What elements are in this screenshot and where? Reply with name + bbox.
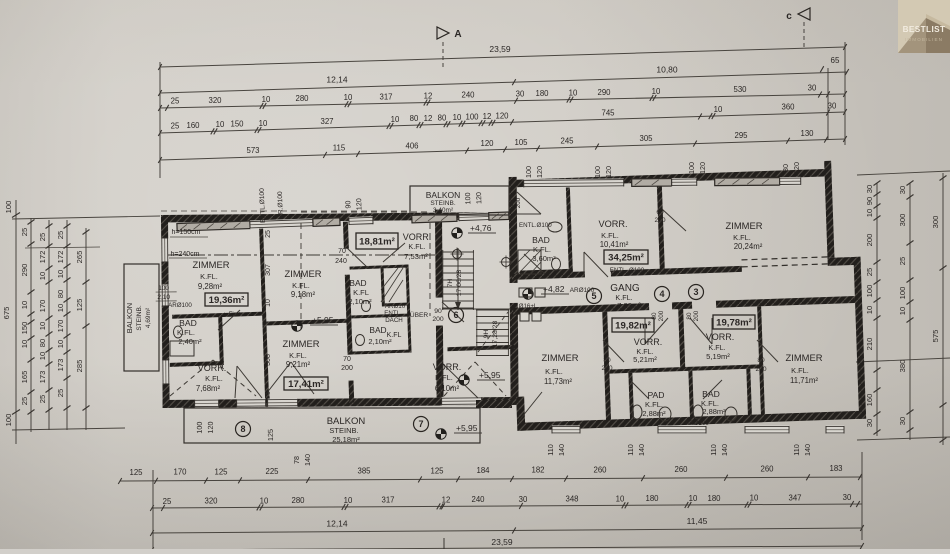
svg-text:BAD: BAD xyxy=(702,389,720,399)
svg-text:170: 170 xyxy=(173,468,187,477)
svg-text:125: 125 xyxy=(214,467,228,476)
svg-text:9,21m²: 9,21m² xyxy=(286,360,311,369)
svg-text:BALKON: BALKON xyxy=(125,303,134,333)
svg-text:200: 200 xyxy=(601,365,612,372)
svg-text:120: 120 xyxy=(495,112,509,121)
svg-text:12: 12 xyxy=(424,114,433,123)
svg-text:12: 12 xyxy=(424,92,433,101)
svg-text:406: 406 xyxy=(405,141,418,150)
svg-text:10,41m²: 10,41m² xyxy=(600,240,629,249)
svg-text:10: 10 xyxy=(898,307,907,315)
svg-text:K.FL.: K.FL. xyxy=(408,242,425,251)
svg-text:30: 30 xyxy=(519,495,528,504)
svg-text:23,59: 23,59 xyxy=(489,44,511,54)
svg-text:K.FL.: K.FL. xyxy=(177,328,195,337)
svg-text:h=240cm: h=240cm xyxy=(171,251,200,258)
svg-text:BESTLIST: BESTLIST xyxy=(903,25,946,34)
svg-text:19,36m²: 19,36m² xyxy=(209,295,245,306)
svg-text:BAD: BAD xyxy=(532,235,550,245)
svg-text:265: 265 xyxy=(75,251,84,264)
svg-text:125: 125 xyxy=(430,466,444,475)
svg-text:120: 120 xyxy=(604,166,613,178)
svg-text:80: 80 xyxy=(56,290,65,298)
svg-text:K.FL.: K.FL. xyxy=(435,373,453,382)
svg-text:100: 100 xyxy=(865,285,874,298)
svg-text:285: 285 xyxy=(75,360,84,373)
svg-text:10: 10 xyxy=(616,494,625,503)
svg-text:K.FL.: K.FL. xyxy=(791,366,809,375)
svg-text:BALKON: BALKON xyxy=(426,190,461,200)
svg-text:ZIMMER: ZIMMER xyxy=(283,338,320,349)
svg-text:172: 172 xyxy=(38,251,47,264)
svg-text:80: 80 xyxy=(38,339,47,347)
svg-text:23,59: 23,59 xyxy=(491,537,513,547)
svg-text:ZIMMER: ZIMMER xyxy=(726,220,763,231)
svg-text:105: 105 xyxy=(514,138,528,147)
svg-text:c: c xyxy=(786,11,792,22)
svg-text:ZIMMER: ZIMMER xyxy=(542,352,579,363)
svg-text:10: 10 xyxy=(56,340,65,348)
svg-text:25: 25 xyxy=(171,97,180,106)
svg-text:80: 80 xyxy=(410,114,419,123)
svg-text:210: 210 xyxy=(865,338,874,351)
svg-text:80: 80 xyxy=(651,312,658,320)
svg-text:240: 240 xyxy=(471,495,485,504)
svg-text:25: 25 xyxy=(171,122,180,131)
svg-text:ENTL.: ENTL. xyxy=(384,310,402,317)
svg-text:7,23m²: 7,23m² xyxy=(617,301,641,310)
svg-text:25: 25 xyxy=(265,391,272,399)
svg-text:9,18m²: 9,18m² xyxy=(291,290,316,299)
svg-text:165: 165 xyxy=(20,371,29,384)
svg-text:30: 30 xyxy=(808,84,817,93)
svg-text:260: 260 xyxy=(760,465,774,474)
svg-text:80: 80 xyxy=(438,113,447,122)
svg-text:34,25m²: 34,25m² xyxy=(608,252,644,263)
svg-text:7: 7 xyxy=(418,419,423,429)
svg-text:172: 172 xyxy=(56,251,65,264)
svg-text:18,81m²: 18,81m² xyxy=(359,236,395,247)
svg-text:K.FL.: K.FL. xyxy=(200,272,218,281)
svg-text:10: 10 xyxy=(20,301,29,309)
svg-text:110: 110 xyxy=(546,444,555,455)
svg-text:25: 25 xyxy=(38,233,47,241)
svg-text:30: 30 xyxy=(828,101,837,110)
svg-text:182: 182 xyxy=(531,466,544,475)
svg-text:30: 30 xyxy=(865,185,874,193)
svg-text:150: 150 xyxy=(230,120,244,129)
svg-text:10: 10 xyxy=(391,115,400,124)
svg-text:10: 10 xyxy=(652,87,661,96)
svg-text:10: 10 xyxy=(38,272,47,280)
svg-text:10: 10 xyxy=(56,304,65,312)
svg-text:120: 120 xyxy=(354,198,363,210)
svg-text:STEINB.: STEINB. xyxy=(430,200,455,207)
svg-text:ZIMMER: ZIMMER xyxy=(285,268,322,279)
svg-text:200: 200 xyxy=(341,365,353,372)
svg-text:140: 140 xyxy=(720,444,729,456)
svg-text:180: 180 xyxy=(707,494,721,503)
svg-text:2,10m²: 2,10m² xyxy=(368,337,392,346)
svg-text:290: 290 xyxy=(20,264,29,277)
svg-text:2,88m²: 2,88m² xyxy=(642,409,666,418)
svg-text:+4,76: +4,76 xyxy=(470,223,492,233)
svg-text:ZIMMER: ZIMMER xyxy=(786,352,823,363)
svg-text:120: 120 xyxy=(698,162,707,174)
svg-text:200: 200 xyxy=(658,310,665,321)
svg-text:4: 4 xyxy=(659,289,664,299)
svg-text:184: 184 xyxy=(476,466,490,475)
svg-text:10: 10 xyxy=(714,105,723,114)
svg-text:9H: 9H xyxy=(483,330,490,339)
svg-text:300: 300 xyxy=(931,216,940,229)
svg-text:25: 25 xyxy=(38,395,47,403)
svg-text:305: 305 xyxy=(639,134,653,143)
svg-text:10: 10 xyxy=(262,95,271,104)
svg-text:10: 10 xyxy=(260,496,269,505)
svg-text:70: 70 xyxy=(338,248,346,255)
svg-text:11,45: 11,45 xyxy=(687,516,708,526)
svg-text:17,41m²: 17,41m² xyxy=(288,379,324,390)
svg-text:A: A xyxy=(454,29,461,40)
svg-text:ARØ100: ARØ100 xyxy=(168,302,192,309)
svg-text:90: 90 xyxy=(865,197,874,205)
svg-text:h=150cm: h=150cm xyxy=(172,229,201,236)
svg-text:317: 317 xyxy=(381,496,394,505)
svg-text:25: 25 xyxy=(865,268,874,276)
svg-text:K.FL.: K.FL. xyxy=(733,233,751,242)
svg-text:120: 120 xyxy=(474,192,483,204)
svg-text:2,88m²: 2,88m² xyxy=(702,407,726,416)
svg-text:12: 12 xyxy=(442,495,451,504)
svg-text:+5,95: +5,95 xyxy=(479,370,501,380)
svg-text:12,14: 12,14 xyxy=(326,75,348,85)
svg-text:3: 3 xyxy=(693,287,698,297)
svg-text:20,24m²: 20,24m² xyxy=(734,242,763,251)
svg-text:130: 130 xyxy=(800,129,814,138)
svg-text:385: 385 xyxy=(357,467,371,476)
svg-text:300: 300 xyxy=(898,214,907,227)
svg-text:11,71m²: 11,71m² xyxy=(790,376,818,385)
svg-text:180: 180 xyxy=(645,494,659,503)
svg-text:100: 100 xyxy=(593,166,602,178)
svg-text:100: 100 xyxy=(898,287,907,300)
svg-text:25: 25 xyxy=(20,397,29,405)
svg-text:ARØ10: ARØ10 xyxy=(385,303,406,310)
svg-text:10: 10 xyxy=(38,352,47,360)
svg-text:308: 308 xyxy=(265,354,272,366)
svg-text:VORR.: VORR. xyxy=(634,337,663,347)
svg-text:+4,82: +4,82 xyxy=(543,284,565,294)
svg-text:745: 745 xyxy=(601,108,615,117)
svg-text:90: 90 xyxy=(434,308,442,315)
svg-text:100: 100 xyxy=(4,414,13,427)
svg-text:10: 10 xyxy=(259,119,268,128)
svg-text:317: 317 xyxy=(379,92,392,101)
svg-text:ARØ100: ARØ100 xyxy=(685,420,709,427)
svg-text:K.FL.: K.FL. xyxy=(292,281,310,290)
svg-text:VORR.: VORR. xyxy=(433,362,462,372)
svg-text:240: 240 xyxy=(461,91,475,100)
svg-text:140: 140 xyxy=(557,444,566,456)
svg-text:675: 675 xyxy=(2,307,11,320)
svg-text:10: 10 xyxy=(569,89,578,98)
svg-text:10: 10 xyxy=(20,340,29,348)
svg-text:10: 10 xyxy=(750,494,759,503)
svg-text:327: 327 xyxy=(320,117,333,126)
svg-text:160: 160 xyxy=(865,394,874,407)
svg-text:5,19m²: 5,19m² xyxy=(706,352,730,361)
svg-text:240: 240 xyxy=(335,258,347,265)
svg-text:10: 10 xyxy=(453,113,462,122)
svg-text:307: 307 xyxy=(265,264,272,276)
svg-text:225: 225 xyxy=(265,467,279,476)
svg-text:200: 200 xyxy=(654,217,665,224)
svg-text:100: 100 xyxy=(465,112,479,121)
svg-text:BAD: BAD xyxy=(349,278,366,288)
svg-text:BAD: BAD xyxy=(179,318,197,328)
svg-text:25: 25 xyxy=(20,228,29,236)
svg-text:140: 140 xyxy=(637,444,646,456)
svg-text:12,14: 12,14 xyxy=(326,519,348,529)
svg-text:347: 347 xyxy=(788,493,801,502)
svg-text:110: 110 xyxy=(626,444,635,455)
svg-text:4,69m²: 4,69m² xyxy=(145,307,152,328)
svg-text:320: 320 xyxy=(204,497,218,506)
svg-text:VORR.: VORR. xyxy=(403,232,432,242)
svg-text:80: 80 xyxy=(508,199,515,206)
svg-text:STEINB.: STEINB. xyxy=(329,426,358,435)
svg-text:120: 120 xyxy=(792,162,801,174)
svg-text:Ø16+L: Ø16+L xyxy=(519,303,538,310)
svg-text:173: 173 xyxy=(56,359,65,372)
svg-text:VORR.: VORR. xyxy=(198,363,227,373)
svg-text:BAD: BAD xyxy=(369,325,386,335)
svg-text:10: 10 xyxy=(865,209,874,217)
svg-text:140: 140 xyxy=(303,454,312,466)
svg-text:STEINB.: STEINB. xyxy=(136,305,143,330)
svg-text:9,28m²: 9,28m² xyxy=(198,282,223,291)
svg-text:10: 10 xyxy=(265,299,272,307)
svg-text:17 06/28: 17 06/28 xyxy=(456,270,463,297)
svg-text:180: 180 xyxy=(535,89,549,98)
svg-text:280: 280 xyxy=(295,94,309,103)
svg-text:183: 183 xyxy=(829,464,842,473)
svg-text:120: 120 xyxy=(480,139,494,148)
svg-text:170: 170 xyxy=(56,320,65,333)
svg-text:100: 100 xyxy=(158,285,169,292)
svg-text:115: 115 xyxy=(333,144,346,153)
svg-text:90: 90 xyxy=(343,200,352,208)
svg-text:80: 80 xyxy=(603,357,611,364)
svg-text:100: 100 xyxy=(687,162,696,174)
svg-text:VORR.: VORR. xyxy=(706,332,735,342)
svg-text:5,21m²: 5,21m² xyxy=(633,355,657,364)
svg-text:25: 25 xyxy=(56,231,65,239)
svg-text:VORR.: VORR. xyxy=(598,219,627,229)
svg-text:100: 100 xyxy=(524,166,533,178)
svg-text:IMMOBILIEN: IMMOBILIEN xyxy=(905,37,943,42)
svg-text:K.FL.: K.FL. xyxy=(545,367,563,376)
svg-text:575: 575 xyxy=(931,330,940,343)
svg-text:573: 573 xyxy=(246,146,259,155)
svg-text:60: 60 xyxy=(656,209,664,216)
svg-text:19,82m²: 19,82m² xyxy=(615,320,651,331)
svg-text:ENTL. Ø100: ENTL. Ø100 xyxy=(610,267,645,274)
svg-text:7H: 7H xyxy=(447,279,454,288)
svg-text:17,28/28: 17,28/28 xyxy=(492,321,499,348)
svg-text:380: 380 xyxy=(898,360,907,373)
svg-text:80: 80 xyxy=(757,357,765,364)
svg-text:10: 10 xyxy=(689,494,698,503)
svg-text:+5,95: +5,95 xyxy=(456,423,478,433)
svg-text:3,40m²: 3,40m² xyxy=(433,207,454,214)
svg-text:↘First: ↘First xyxy=(223,311,240,318)
svg-text:ENTL.Ø100: ENTL.Ø100 xyxy=(519,222,552,229)
svg-text:320: 320 xyxy=(208,96,222,105)
svg-text:348: 348 xyxy=(565,495,578,504)
svg-text:80: 80 xyxy=(686,312,693,320)
svg-text:ÜBER: ÜBER xyxy=(410,311,429,319)
svg-text:30: 30 xyxy=(865,419,874,427)
svg-text:110: 110 xyxy=(792,444,801,455)
svg-text:245: 245 xyxy=(560,137,574,146)
svg-text:290: 290 xyxy=(597,88,611,97)
svg-text:25: 25 xyxy=(898,257,907,265)
svg-text:5: 5 xyxy=(591,291,596,301)
svg-text:173: 173 xyxy=(38,371,47,384)
svg-text:PAD: PAD xyxy=(647,390,664,400)
svg-text:ENTL.Ø100: ENTL.Ø100 xyxy=(259,188,267,223)
svg-text:200: 200 xyxy=(432,316,444,323)
svg-text:6,10m²: 6,10m² xyxy=(435,384,460,393)
svg-text:100: 100 xyxy=(463,192,472,204)
svg-text:120: 120 xyxy=(206,422,215,434)
svg-text:25,18m²: 25,18m² xyxy=(332,435,360,444)
svg-text:30: 30 xyxy=(898,417,907,425)
svg-text:8: 8 xyxy=(240,424,245,434)
svg-text:260: 260 xyxy=(593,465,607,474)
svg-text:120: 120 xyxy=(535,166,544,178)
svg-text:150: 150 xyxy=(20,322,29,335)
svg-text:K.FL.: K.FL. xyxy=(205,374,223,383)
svg-text:30: 30 xyxy=(898,186,907,194)
svg-text:10: 10 xyxy=(216,120,225,129)
svg-text:530: 530 xyxy=(733,85,747,94)
svg-text:100: 100 xyxy=(4,201,13,214)
svg-text:10,80: 10,80 xyxy=(656,65,678,75)
svg-text:6: 6 xyxy=(453,310,458,320)
svg-text:100: 100 xyxy=(195,422,204,434)
svg-text:140: 140 xyxy=(803,444,812,456)
svg-text:125: 125 xyxy=(266,429,275,441)
svg-text:10: 10 xyxy=(38,322,47,330)
svg-text:260: 260 xyxy=(674,465,688,474)
svg-text:7,53m²: 7,53m² xyxy=(404,252,428,261)
svg-text:65: 65 xyxy=(831,56,840,65)
svg-text:80: 80 xyxy=(781,164,790,172)
svg-text:AR.Ø100: AR.Ø100 xyxy=(277,191,285,219)
svg-text:10: 10 xyxy=(56,270,65,278)
svg-text:25: 25 xyxy=(265,230,272,238)
svg-text:170: 170 xyxy=(38,300,47,313)
svg-text:125: 125 xyxy=(129,468,143,477)
svg-text:10: 10 xyxy=(865,306,874,314)
svg-text:11,73m²: 11,73m² xyxy=(544,377,572,386)
svg-text:10: 10 xyxy=(344,93,353,102)
svg-text:200: 200 xyxy=(755,366,766,373)
svg-text:200: 200 xyxy=(515,197,522,208)
svg-text:ZIMMER: ZIMMER xyxy=(193,259,230,270)
svg-text:200: 200 xyxy=(693,310,700,321)
svg-text:295: 295 xyxy=(734,131,748,140)
svg-text:280: 280 xyxy=(291,496,305,505)
svg-text:K.FL.: K.FL. xyxy=(601,231,619,240)
svg-text:K.FL.: K.FL. xyxy=(708,343,725,352)
svg-text:7,68m²: 7,68m² xyxy=(196,384,221,393)
svg-text:12: 12 xyxy=(483,112,492,121)
svg-text:DACH: DACH xyxy=(385,317,403,324)
svg-text:10: 10 xyxy=(344,496,353,505)
svg-text:K.FL.: K.FL. xyxy=(645,400,663,409)
svg-text:25: 25 xyxy=(163,497,172,506)
svg-text:110: 110 xyxy=(709,444,718,455)
svg-text:19,78m²: 19,78m² xyxy=(716,317,752,328)
svg-text:30: 30 xyxy=(516,90,525,99)
svg-text:200: 200 xyxy=(865,234,874,247)
svg-text:+5,95: +5,95 xyxy=(312,315,334,325)
svg-text:K.FL: K.FL xyxy=(353,288,369,297)
svg-text:360: 360 xyxy=(781,103,795,112)
svg-text:30: 30 xyxy=(843,493,852,502)
svg-text:125: 125 xyxy=(75,299,84,312)
svg-text:25: 25 xyxy=(56,389,65,397)
svg-text:K.FL.: K.FL. xyxy=(289,351,307,360)
svg-text:70: 70 xyxy=(343,356,351,363)
svg-text:78: 78 xyxy=(292,456,301,464)
svg-text:160: 160 xyxy=(186,121,200,130)
